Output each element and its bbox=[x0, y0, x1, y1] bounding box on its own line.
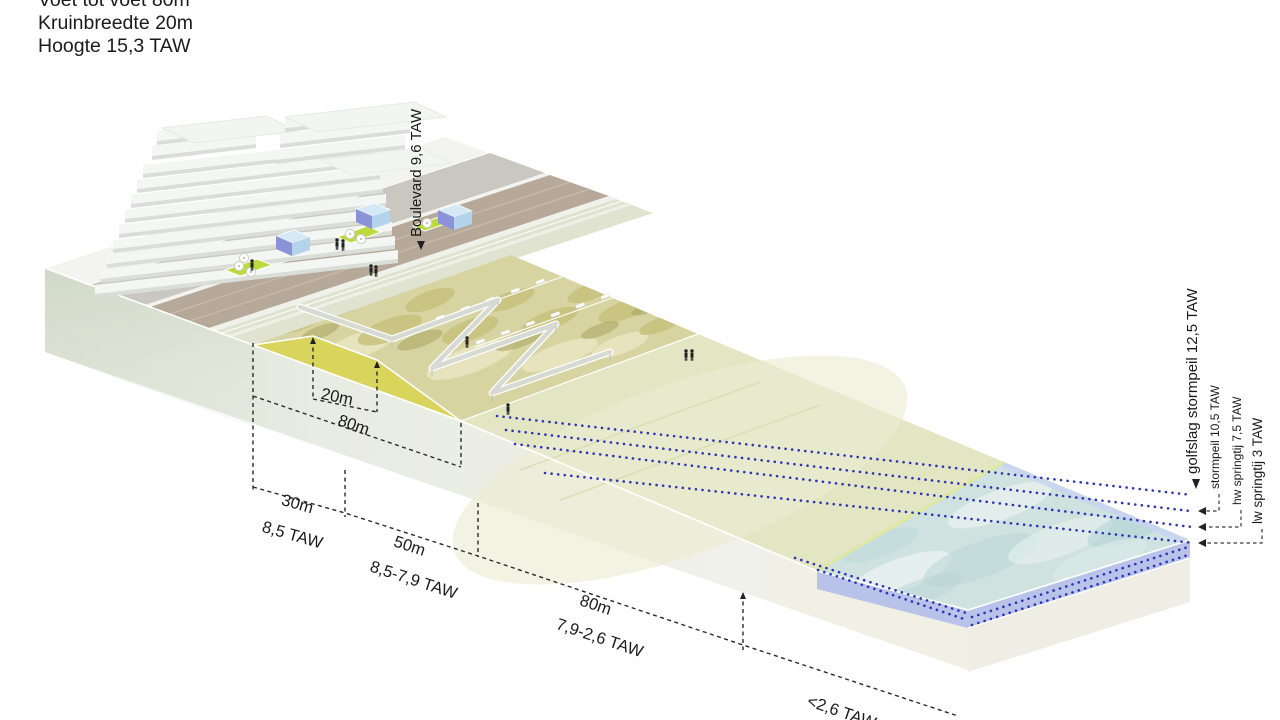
scene-canvas: 20m 80m 30m 8,5 TAW 50m 8,5-7,9 TAW 80m … bbox=[0, 0, 1280, 720]
level-7-9-2-6: 7,9-2,6 TAW bbox=[554, 615, 646, 661]
label-lw-springtij: lw springtij 3 TAW bbox=[1250, 417, 1265, 524]
label-golfslag-stormpeil: golfslag stormpeil 12,5 TAW bbox=[1184, 288, 1201, 474]
boulevard-level-label: Boulevard 9,6 TAW bbox=[408, 108, 425, 250]
title-line-1: Voet tot voet 80m bbox=[38, 0, 190, 11]
level-8-5: 8,5 TAW bbox=[260, 518, 325, 553]
dim-30m: 30m bbox=[279, 491, 315, 517]
left-arrow-icon bbox=[1198, 507, 1206, 515]
coastal-section-diagram: 20m 80m 30m 8,5 TAW 50m 8,5-7,9 TAW 80m … bbox=[0, 0, 1280, 720]
label-hw-springtij: hw springtij 7,5 TAW bbox=[1230, 396, 1244, 505]
title-block: Voet tot voet 80m Kruinbreedte 20m Hoogt… bbox=[38, 0, 193, 57]
level-8-5-7-9: 8,5-7,9 TAW bbox=[368, 558, 460, 603]
title-line-2: Kruinbreedte 20m bbox=[38, 12, 193, 34]
left-arrow-icon bbox=[1198, 539, 1206, 547]
level-lt-2-6: <2,6 TAW bbox=[805, 692, 879, 720]
down-arrow-icon bbox=[1192, 479, 1200, 489]
dim-50m: 50m bbox=[391, 533, 427, 560]
dim-80m-beach: 80m bbox=[578, 592, 614, 619]
label-stormpeil: stormpeil 10,5 TAW bbox=[1208, 385, 1222, 489]
left-arrow-icon bbox=[1198, 523, 1206, 531]
boulevard-label-text: Boulevard 9,6 TAW bbox=[408, 108, 425, 237]
water-level-label-group: golfslag stormpeil 12,5 TAW stormpeil 10… bbox=[1184, 288, 1265, 547]
title-line-3: Hoogte 15,3 TAW bbox=[38, 35, 191, 57]
